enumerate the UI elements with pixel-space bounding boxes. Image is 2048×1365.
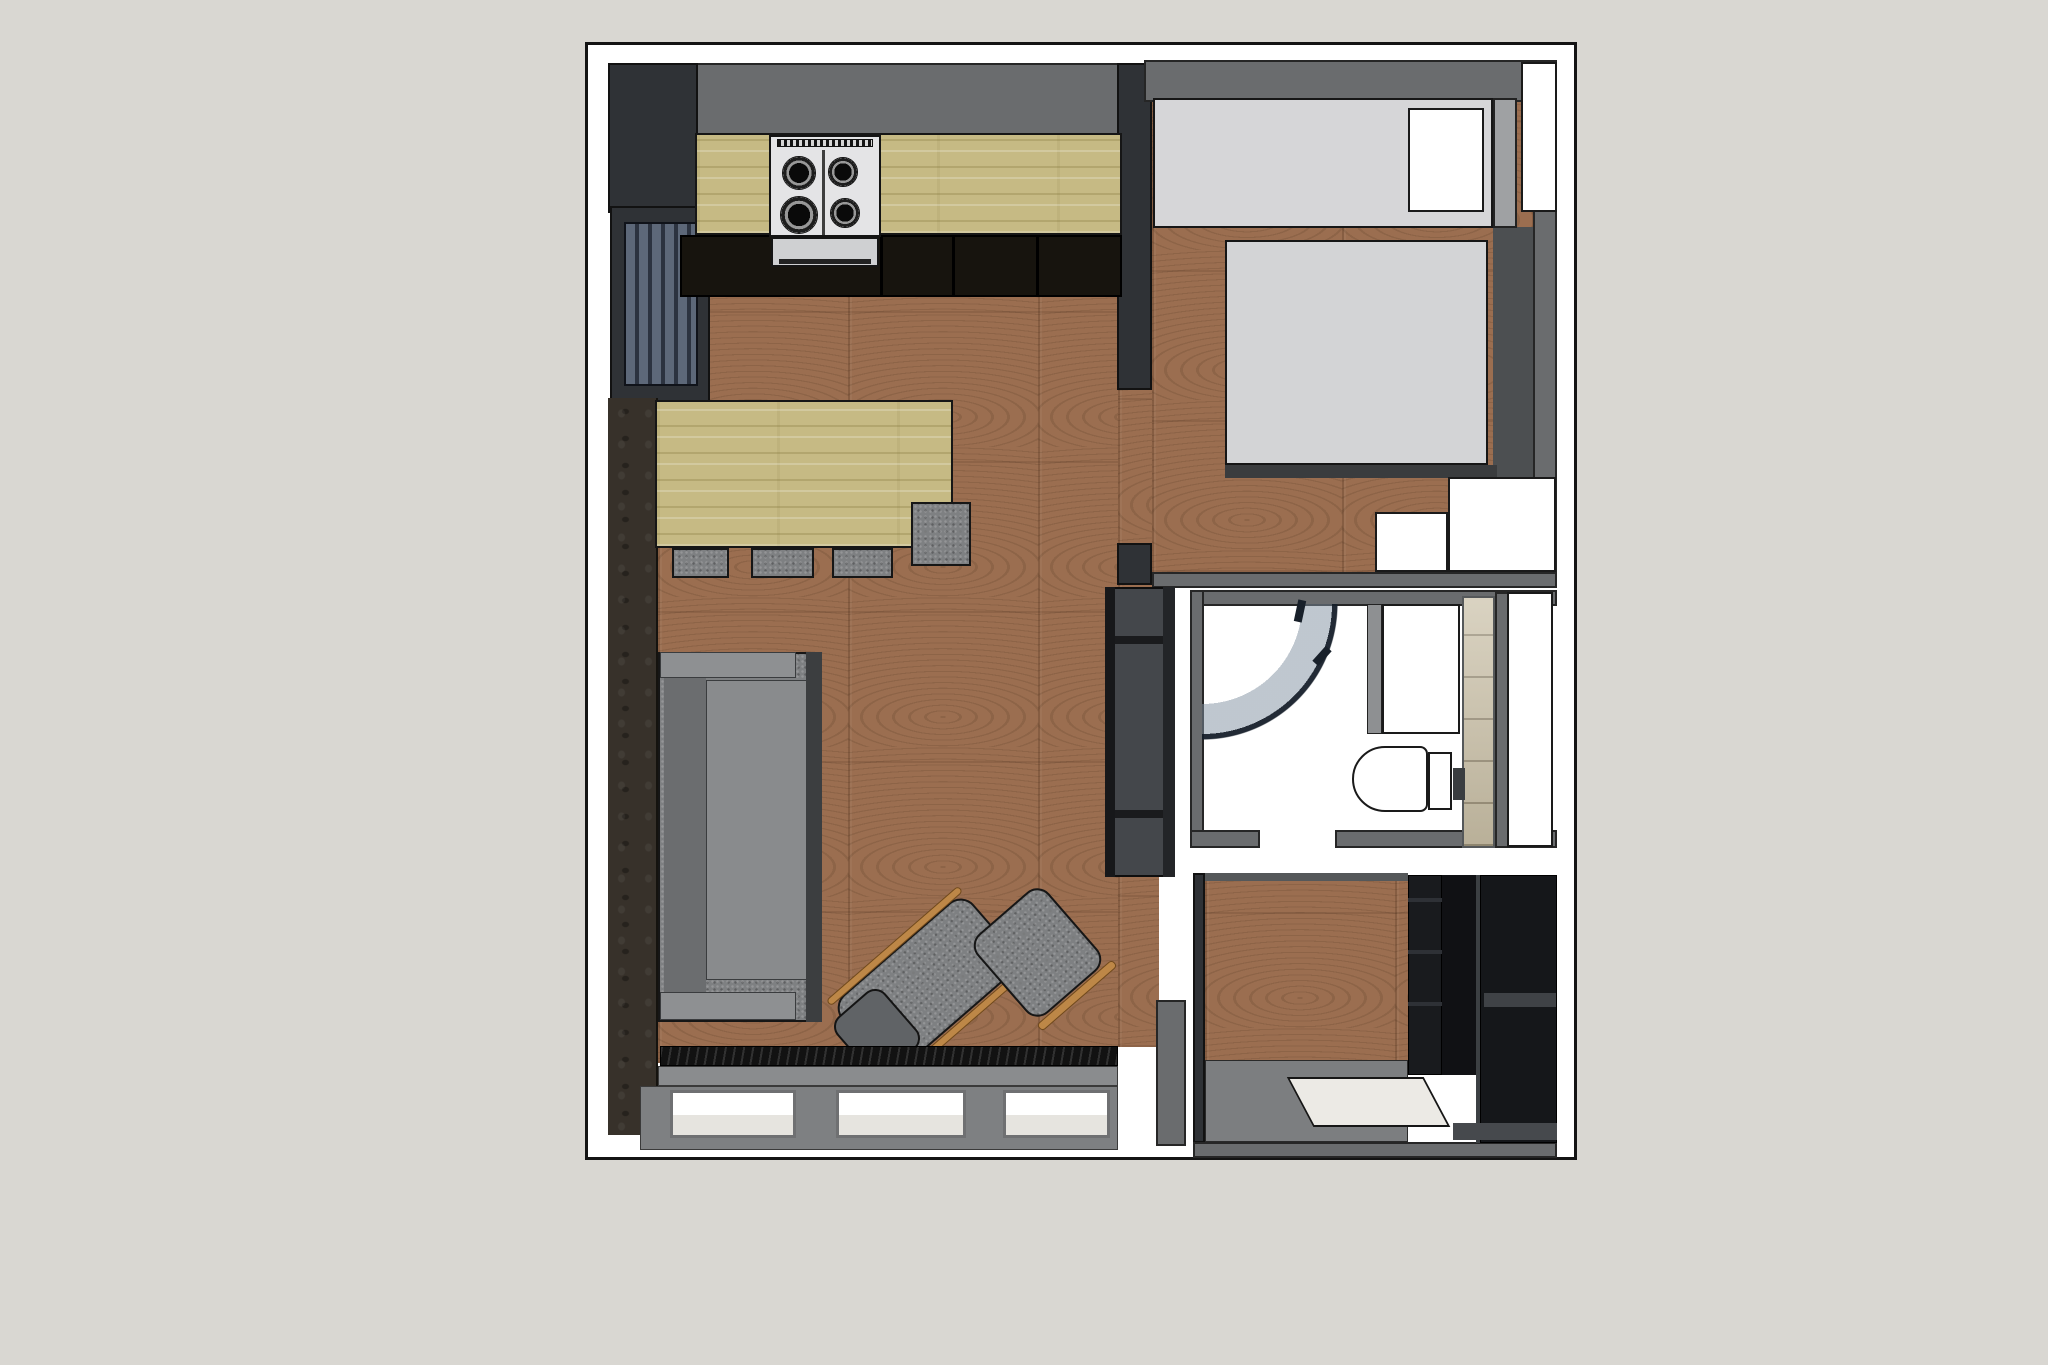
living-floor-entry-edge	[1118, 877, 1159, 1047]
flush-plate	[1453, 768, 1465, 800]
shelving-shelf-line-2	[1408, 950, 1442, 954]
sofa-seat	[706, 680, 810, 980]
kitchen-corner-wall	[608, 63, 698, 213]
stove-grate-divider	[822, 150, 825, 236]
tv-cabinet-right-trim	[1163, 587, 1175, 877]
shelving-right-column	[1480, 875, 1557, 1143]
toilet-tank	[1428, 752, 1452, 810]
burner-top-right	[828, 157, 858, 187]
bedroom-top-wall	[1144, 60, 1557, 102]
doorway-floor	[1118, 385, 1152, 550]
cabinet-divider-1	[880, 237, 883, 295]
vanity-cabinet	[1382, 604, 1460, 734]
sofa-back-cushion	[664, 662, 706, 1010]
oven-handle	[779, 259, 871, 264]
bathroom-niche	[1507, 592, 1553, 847]
window-pane-3	[1003, 1090, 1110, 1138]
nightstand-large	[1448, 477, 1556, 572]
entry-top-wall	[1205, 873, 1408, 881]
nightstand-small	[1375, 512, 1448, 572]
window-pane-2	[836, 1090, 966, 1138]
bedroom-bottom-wall	[1152, 572, 1557, 588]
sofa-armrest-top	[660, 652, 796, 678]
sofa-armrest-bottom	[660, 992, 796, 1020]
closet-side-cap	[1493, 98, 1517, 228]
entry-bottom-wall	[1193, 1142, 1557, 1158]
floor-plan-page	[0, 0, 2048, 1365]
burner-top-left	[782, 156, 816, 190]
stool-4	[911, 502, 971, 566]
shelving-shelf-line-3	[1408, 1002, 1442, 1006]
cabinet-divider-3	[1036, 237, 1039, 295]
bathroom-tile-wall	[1462, 596, 1495, 848]
shelving-shelf-bottom	[1453, 1123, 1557, 1140]
shelving-shelf-mid	[1484, 993, 1556, 1007]
bedroom-dark-floor-strip	[1493, 227, 1533, 477]
kitchen-counter	[695, 133, 1122, 235]
kitchen-base-cabinets	[680, 235, 1122, 297]
entry-floor-wood	[1205, 878, 1408, 1064]
partition-wall-upper	[1117, 63, 1152, 390]
radiator-grille	[660, 1046, 1118, 1066]
bathroom-bottom-wall-left	[1190, 830, 1260, 848]
sofa-side-shadow	[806, 652, 822, 1022]
burner-bottom-left	[780, 196, 818, 234]
living-corner-wall	[1156, 1000, 1186, 1146]
shelving-shelf-line-1	[1408, 898, 1442, 902]
partition-wall-stub	[1117, 543, 1152, 585]
entry-doormat	[1287, 1077, 1451, 1127]
burner-bottom-right	[830, 198, 860, 228]
dining-table	[655, 400, 953, 548]
stove-vent-strip	[777, 139, 873, 147]
shelving-edge-highlight	[1476, 875, 1480, 1143]
cabinet-divider-2	[952, 237, 955, 295]
vanity-side-panel	[1367, 604, 1382, 734]
window-pane-1	[670, 1090, 796, 1138]
toilet-bowl	[1352, 746, 1428, 812]
accent-wall	[608, 398, 658, 1135]
open-door-panel	[1521, 62, 1557, 212]
tv-cabinet-left-rail	[1105, 587, 1115, 877]
stool-2	[751, 548, 814, 578]
entry-left-wall	[1193, 873, 1205, 1143]
stool-1	[672, 548, 729, 578]
window-sill	[658, 1066, 1118, 1086]
shower-glass-arc	[1202, 604, 1352, 754]
bed	[1225, 240, 1488, 465]
closet-door-white	[1408, 108, 1484, 212]
shelving-left-column	[1408, 875, 1442, 1075]
stool-3	[832, 548, 893, 578]
shelving-mid-column	[1442, 875, 1480, 1075]
